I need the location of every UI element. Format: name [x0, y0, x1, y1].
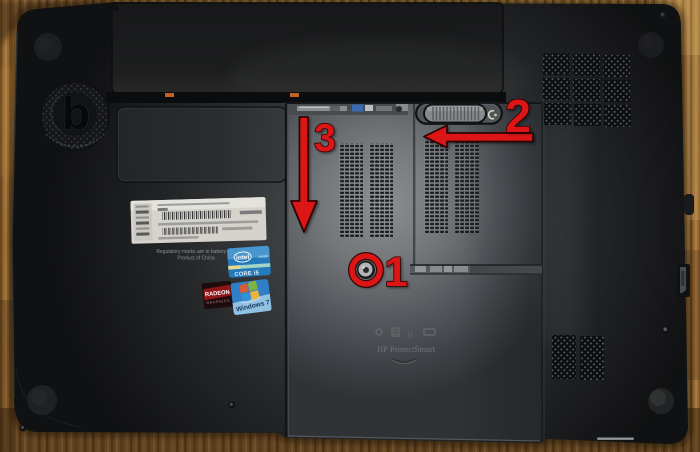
svg-text:1: 1 — [384, 248, 407, 295]
svg-text:2: 2 — [505, 90, 531, 142]
svg-text:3: 3 — [314, 117, 336, 160]
